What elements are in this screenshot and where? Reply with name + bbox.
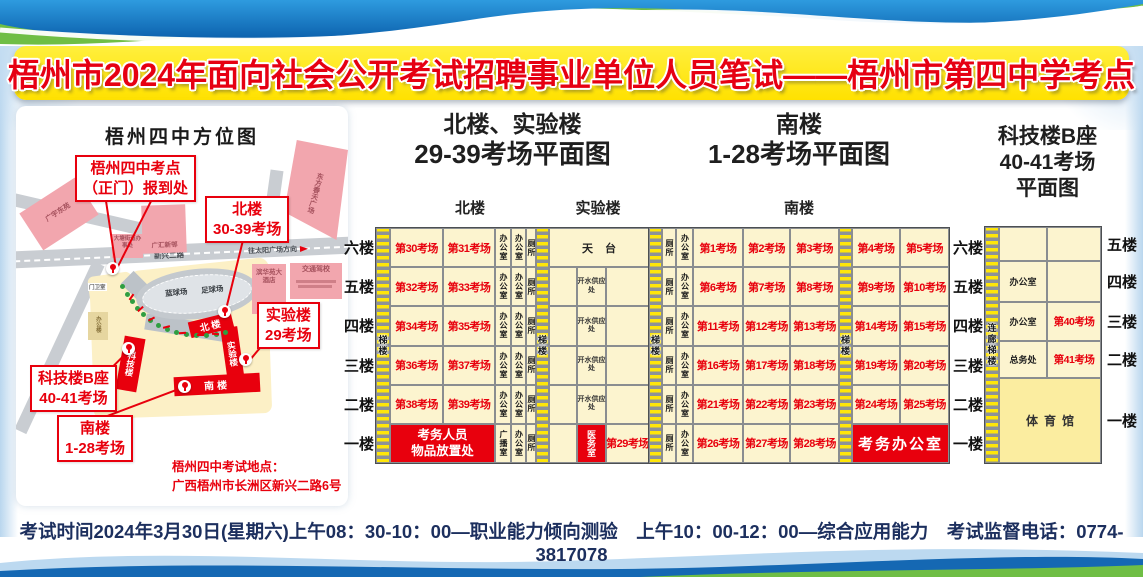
materials-storage-line: 物品放置处	[411, 443, 474, 459]
building-jiaxiao: 交通驾校	[290, 263, 342, 299]
facility-cell: 厕所	[526, 424, 536, 463]
floor-label: 一楼	[953, 424, 983, 463]
facility-cell: 厕所	[662, 346, 676, 385]
exam-room-cell: 第15考场	[900, 306, 949, 345]
tech-plan-title-line2: 40-41考场	[980, 152, 1115, 173]
floor-label: 四楼	[1107, 261, 1137, 302]
floor-label: 五楼	[953, 267, 983, 306]
tech-plan-title-line3: 平面图	[980, 178, 1115, 199]
tiny-text-line	[296, 280, 336, 283]
exam-room-cell: 第40考场	[1047, 302, 1101, 341]
path-dot	[204, 333, 209, 338]
exam-room-cell: 第24考场	[852, 385, 900, 424]
building-binhuayuan-label: 滨华苑大酒店	[256, 269, 282, 285]
stairs-column: 梯楼	[536, 228, 549, 463]
exam-room-cell: 第19考场	[852, 346, 900, 385]
stairs-column: 梯楼	[376, 228, 390, 463]
lab-room-cell	[549, 346, 577, 385]
stairs-column: 连廊梯楼	[985, 227, 999, 463]
south-pin-icon	[178, 380, 191, 393]
route-dash	[197, 334, 204, 336]
lab-room-cell	[606, 346, 649, 385]
stairs-label: 梯楼	[839, 335, 852, 357]
path-dot	[223, 330, 228, 335]
callout-north: 北楼 30-39考场	[205, 196, 289, 243]
route-dash	[212, 333, 219, 335]
water-supply-cell: 开水供应处	[577, 267, 606, 306]
stairs-column: 梯楼	[839, 228, 852, 463]
clinic-cell: 医务室	[577, 424, 606, 463]
office-cell: 办公室	[999, 302, 1047, 341]
exam-room-cell: 第6考场	[693, 267, 743, 306]
water-supply-cell: 开水供应处	[577, 385, 606, 424]
tech-table: 连廊梯楼办公室办公室第40考场总务处第41考场体育馆	[985, 227, 1101, 463]
building-guanghui-label: 广汇新邨	[142, 241, 186, 251]
path-dot	[141, 312, 146, 317]
water-supply-cell: 开水供应处	[577, 306, 606, 345]
direction-arrow-icon	[300, 246, 308, 252]
exam-room-cell: 第12考场	[743, 306, 790, 345]
callout-lab-line2: 29考场	[265, 326, 312, 346]
exam-room-cell: 第31考场	[443, 228, 495, 267]
south-building-sublabel: 南楼	[649, 197, 949, 218]
north-lab-table: 梯楼梯楼第30考场第31考场办公室办公室厕所天台第32考场第33考场办公室办公室…	[376, 228, 649, 463]
exam-room-cell: 第34考场	[390, 306, 443, 345]
materials-storage-line: 考务人员	[417, 427, 467, 443]
facility-cell: 厕所	[662, 424, 676, 463]
exam-room-cell: 第11考场	[693, 306, 743, 345]
exam-room-cell: 第32考场	[390, 267, 443, 306]
facility-cell: 厕所	[526, 228, 536, 267]
exam-address-line1: 梧州四中考试地点：	[172, 458, 341, 477]
facility-cell: 办公室	[511, 228, 526, 267]
exam-room-cell: 第20考场	[900, 346, 949, 385]
exam-room-cell: 第29考场	[606, 424, 649, 463]
exam-room-cell: 第36考场	[390, 346, 443, 385]
building-jiaxiao-label: 交通驾校	[290, 266, 342, 275]
facility-cell: 广播室	[495, 424, 511, 463]
facility-cell: 办公室	[676, 306, 693, 345]
exam-room-cell: 第1考场	[693, 228, 743, 267]
room-cell	[1047, 227, 1101, 261]
callout-lab: 实验楼 29考场	[257, 302, 320, 349]
facility-cell: 厕所	[662, 267, 676, 306]
exam-room-cell: 第27考场	[743, 424, 790, 463]
facility-cell: 办公室	[676, 385, 693, 424]
exam-room-cell: 第5考场	[900, 228, 949, 267]
exam-room-cell: 第30考场	[390, 228, 443, 267]
north-pin-icon	[218, 305, 231, 318]
lab-room-cell	[549, 267, 577, 306]
callout-north-line1: 北楼	[213, 200, 281, 220]
floor-label: 五楼	[344, 267, 376, 306]
office-cell: 办公室	[999, 261, 1047, 302]
callout-south-line2: 1-28考场	[65, 439, 125, 459]
exam-address: 梧州四中考试地点： 广西梧州市长洲区新兴二路6号	[172, 458, 341, 497]
facility-cell: 办公室	[511, 385, 526, 424]
callout-south-line1: 南楼	[65, 419, 125, 439]
facility-cell: 办公室	[511, 346, 526, 385]
callout-gate: 梧州四中考点 （正门）报到处	[75, 155, 196, 202]
tiny-text-line	[298, 285, 332, 288]
facility-cell: 厕所	[526, 346, 536, 385]
facility-cell: 办公室	[511, 267, 526, 306]
north-building-sublabel: 北楼	[430, 197, 510, 218]
gate-pin-icon	[106, 262, 119, 275]
facility-cell: 办公室	[495, 306, 511, 345]
exam-room-cell: 第14考场	[852, 306, 900, 345]
lab-room-cell	[549, 306, 577, 345]
exam-room-cell: 第21考场	[693, 385, 743, 424]
facility-cell: 厕所	[662, 306, 676, 345]
poster-title: 梧州市2024年面向社会公开考试招聘事业单位人员笔试——梧州市第四中学考点	[8, 50, 1135, 96]
building-guanghui: 广汇新邨	[141, 204, 187, 254]
lab-room-cell	[606, 306, 649, 345]
floor-label: 一楼	[1107, 378, 1137, 463]
stairs-label: 梯楼	[536, 335, 549, 357]
title-banner: 梧州市2024年面向社会公开考试招聘事业单位人员笔试——梧州市第四中学考点	[14, 46, 1129, 100]
lab-room-cell	[549, 385, 577, 424]
south-plan-title-line2: 1-28考场平面图	[649, 141, 949, 167]
facility-cell: 办公室	[676, 346, 693, 385]
exam-room-cell: 第13考场	[790, 306, 839, 345]
facility-cell: 办公室	[676, 424, 693, 463]
path-dot	[156, 323, 161, 328]
stairs-column: 梯楼	[649, 228, 662, 463]
exam-room-cell: 第26考场	[693, 424, 743, 463]
floor-label: 六楼	[953, 228, 983, 267]
facility-cell: 办公室	[676, 267, 693, 306]
gatehouse-label: 门卫室	[88, 283, 107, 291]
exam-room-cell: 第3考场	[790, 228, 839, 267]
floor-label: 四楼	[344, 306, 376, 345]
floor-label: 二楼	[1107, 341, 1137, 378]
facility-cell: 办公室	[495, 228, 511, 267]
stairs-label: 梯楼	[649, 335, 662, 357]
south-table: 梯楼梯楼厕所办公室第1考场第2考场第3考场第4考场第5考场厕所办公室第6考场第7…	[649, 228, 949, 463]
building-office: 办公楼	[88, 312, 108, 340]
facility-cell: 办公室	[511, 424, 526, 463]
exam-room-cell: 第28考场	[790, 424, 839, 463]
exam-room-cell: 第41考场	[1047, 341, 1101, 378]
tech-pin-icon	[122, 342, 135, 355]
building-dongfang: 东方春天广场	[284, 140, 348, 240]
facility-cell: 厕所	[662, 228, 676, 267]
south-plan-title-line1: 南楼	[649, 113, 949, 136]
floor-label: 三楼	[953, 346, 983, 385]
facility-cell: 厕所	[526, 385, 536, 424]
stairs-label: 连廊梯楼	[986, 323, 999, 367]
floor-label: 六楼	[344, 228, 376, 267]
callout-gate-line2: （正门）报到处	[83, 179, 188, 199]
exam-room-cell: 第17考场	[743, 346, 790, 385]
exam-room-cell: 第16考场	[693, 346, 743, 385]
rooftop-cell: 天台	[549, 228, 649, 267]
exam-room-cell: 第37考场	[443, 346, 495, 385]
callout-lab-line1: 实验楼	[265, 306, 312, 326]
exam-room-cell: 第35考场	[443, 306, 495, 345]
callout-tech-line1: 科技楼B座	[38, 369, 109, 389]
facility-cell: 办公室	[495, 267, 511, 306]
lab-building-sublabel: 实验楼	[558, 197, 638, 218]
location-map-panel: 梧州四中方位图 新兴二路 新兴二路 往太阳广场方向 蓝球场 足球场 广宇东苑 大…	[16, 106, 348, 506]
facility-cell: 厕所	[526, 306, 536, 345]
facility-cell: 办公室	[511, 306, 526, 345]
north-lab-plan-title-line1: 北楼、实验楼	[376, 113, 649, 136]
materials-storage-cell: 考务人员物品放置处	[390, 424, 495, 463]
exam-room-cell: 第10考场	[900, 267, 949, 306]
water-supply-cell: 开水供应处	[577, 346, 606, 385]
exam-room-cell: 第18考场	[790, 346, 839, 385]
lab-pin-icon	[239, 353, 252, 366]
floor-label: 三楼	[344, 346, 376, 385]
facility-cell: 办公室	[495, 346, 511, 385]
tech-plan-title-line1: 科技楼B座	[980, 126, 1115, 147]
floor-label: 五楼	[1107, 227, 1137, 261]
basketball-court-label: 蓝球场	[164, 286, 188, 299]
poster: 梧州市2024年面向社会公开考试招聘事业单位人员笔试——梧州市第四中学考点 梧州…	[0, 0, 1143, 577]
floor-label: 二楼	[344, 385, 376, 424]
room-cell	[1047, 261, 1101, 302]
floor-label: 一楼	[344, 424, 376, 463]
footer-exam-info: 考试时间2024年3月30日(星期六)上午08：30-10：00—职业能力倾向测…	[0, 518, 1143, 566]
path-dot	[120, 284, 125, 289]
callout-gate-line1: 梧州四中考点	[83, 159, 188, 179]
exam-room-cell: 第8考场	[790, 267, 839, 306]
building-dongfang-label: 东方春天广场	[301, 158, 328, 228]
exam-address-line2: 广西梧州市长洲区新兴二路6号	[172, 477, 341, 496]
exam-office-cell: 考务办公室	[852, 424, 949, 463]
lab-room-cell	[549, 424, 577, 463]
floor-label: 四楼	[953, 306, 983, 345]
building-office-label: 办公楼	[94, 316, 101, 333]
callout-tech: 科技楼B座 40-41考场	[30, 365, 117, 412]
gymnasium-cell: 体育馆	[999, 378, 1101, 463]
callout-tech-line2: 40-41考场	[38, 389, 109, 409]
exam-room-cell: 第23考场	[790, 385, 839, 424]
exam-room-cell: 第22考场	[743, 385, 790, 424]
exam-room-cell: 第4考场	[852, 228, 900, 267]
stairs-label: 梯楼	[377, 335, 390, 357]
floor-label: 二楼	[953, 385, 983, 424]
exam-room-cell: 第39考场	[443, 385, 495, 424]
facility-cell: 厕所	[526, 267, 536, 306]
facility-cell: 办公室	[495, 385, 511, 424]
floor-label: 三楼	[1107, 302, 1137, 341]
top-wave-decoration	[0, 0, 1143, 46]
exam-room-cell: 第33考场	[443, 267, 495, 306]
exam-room-cell: 第9考场	[852, 267, 900, 306]
facility-cell: 办公室	[676, 228, 693, 267]
callout-south: 南楼 1-28考场	[57, 415, 133, 462]
exam-room-cell: 第38考场	[390, 385, 443, 424]
lab-room-cell	[606, 385, 649, 424]
callout-north-line2: 30-39考场	[213, 220, 281, 240]
office-cell: 总务处	[999, 341, 1047, 378]
lab-room-cell	[606, 267, 649, 306]
football-field-label: 足球场	[200, 283, 224, 296]
exam-room-cell: 第7考场	[743, 267, 790, 306]
exam-room-cell: 第25考场	[900, 385, 949, 424]
building-binhuayuan: 滨华苑大酒店	[252, 264, 286, 302]
facility-cell: 厕所	[662, 385, 676, 424]
room-cell	[999, 227, 1047, 261]
direction-text: 往太阳广场方向	[248, 246, 297, 255]
north-lab-plan-title-line2: 29-39考场平面图	[376, 141, 649, 167]
exam-room-cell: 第2考场	[743, 228, 790, 267]
